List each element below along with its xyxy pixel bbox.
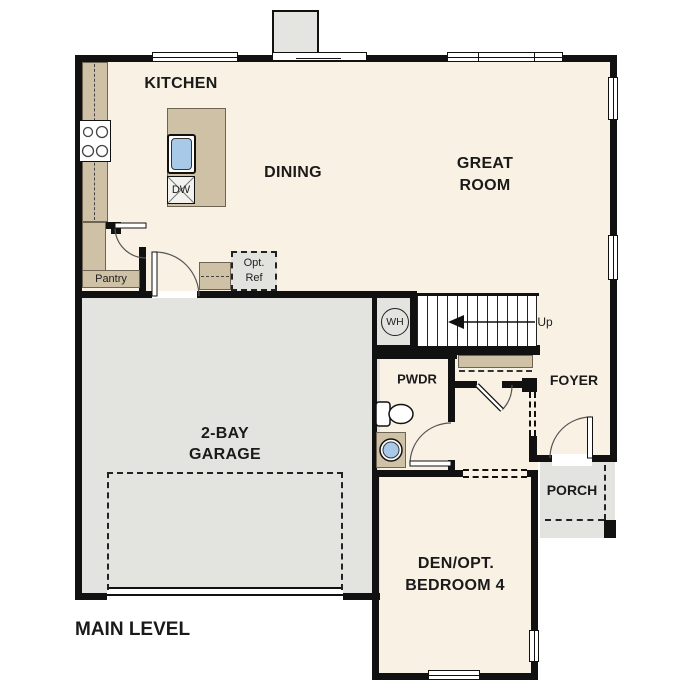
opt-ref-label-line1: Opt.	[244, 257, 265, 269]
plan-title: MAIN LEVEL	[75, 619, 190, 641]
kitchen-label: KITCHEN	[144, 75, 217, 93]
pwdr-label: PWDR	[397, 372, 437, 387]
vanity-sink	[380, 439, 402, 461]
garage-label-line2: GARAGE	[189, 446, 261, 464]
stairs-up-label: Up	[537, 315, 552, 329]
up-arrow-icon	[448, 315, 535, 329]
closet-door	[477, 385, 512, 410]
toilet	[376, 402, 413, 426]
opt-ref-label-line2: Ref	[245, 272, 262, 284]
garage-label-line1: 2-BAY	[201, 425, 249, 443]
water-heater-label: WH	[386, 316, 404, 328]
den-label-line1: DEN/OPT.	[418, 555, 494, 573]
floor-plan: KITCHEN DINING GREAT ROOM Pantry Opt. Re…	[0, 0, 687, 687]
front-door	[550, 417, 593, 458]
garage-entry-door	[152, 252, 199, 296]
pantry-door	[115, 223, 146, 258]
fixtures-overlay	[0, 0, 687, 687]
great-room-label-line2: ROOM	[460, 177, 511, 195]
great-room-label-line1: GREAT	[457, 155, 513, 173]
pantry-label: Pantry	[95, 273, 127, 285]
den-label-line2: BEDROOM 4	[405, 577, 505, 595]
dining-label: DINING	[264, 164, 322, 182]
pwdr-door	[410, 423, 451, 466]
porch-label: PORCH	[547, 482, 598, 498]
dishwasher-label: DW	[172, 184, 190, 196]
stove-burners	[83, 127, 108, 157]
foyer-label: FOYER	[550, 372, 598, 388]
